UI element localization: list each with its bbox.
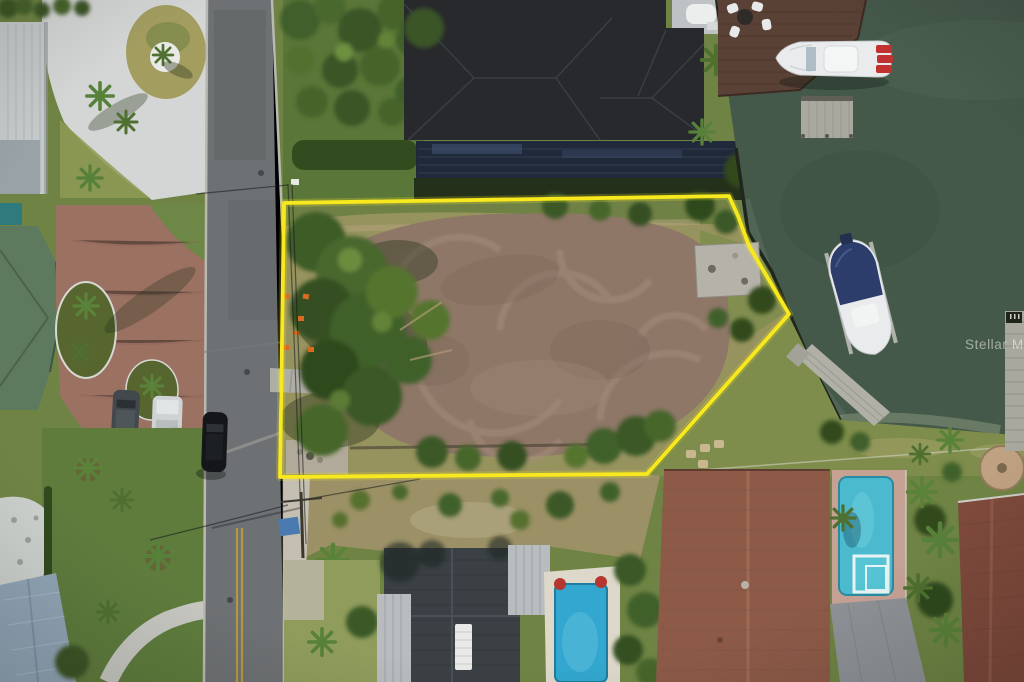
vignette bbox=[0, 0, 1024, 682]
watermark-text: Stellar MLS bbox=[965, 337, 1024, 352]
aerial-photo-canvas: Stellar MLS bbox=[0, 0, 1024, 682]
aerial-photo: Stellar MLS bbox=[0, 0, 1024, 682]
